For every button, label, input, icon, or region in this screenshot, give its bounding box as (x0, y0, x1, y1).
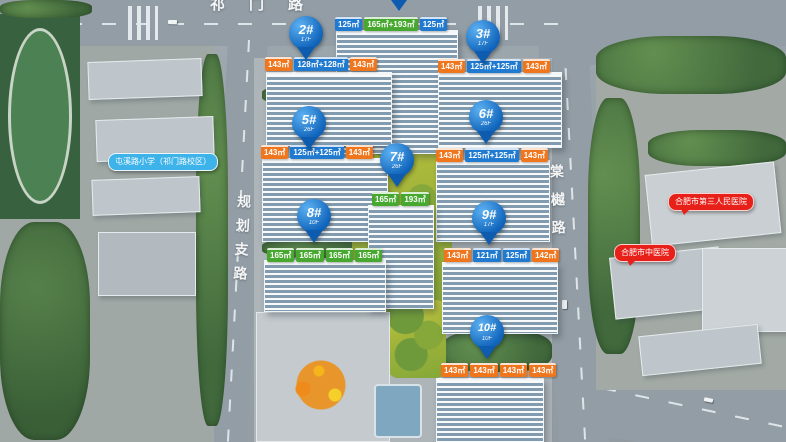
tower-2 (266, 72, 392, 146)
pin-1-partial (391, 0, 407, 11)
school-building (87, 58, 202, 100)
building-number: 7# (380, 150, 414, 163)
pool-plaza (374, 384, 422, 438)
building-floors: 17F (466, 40, 500, 48)
area-label: 143㎡ (441, 363, 468, 377)
pin-tail (297, 47, 315, 60)
building-floors: 26F (380, 163, 414, 171)
pin-tail (480, 232, 498, 245)
hospital-bottom-bubble: 合肥市中医院 (614, 244, 676, 262)
road-name-top: 祁门路 (210, 0, 327, 14)
area-label: 121㎡ (473, 248, 500, 262)
area-strip-6: 143㎡ 125㎡+125㎡ 143㎡ (435, 148, 549, 162)
hospital-building (702, 248, 786, 332)
area-label: 165㎡ (355, 248, 382, 262)
pin-building-6: 6# 26F (466, 100, 506, 144)
school-building (91, 176, 200, 216)
building-number: 5# (292, 113, 326, 126)
pin-building-5: 5# 26F (289, 106, 329, 150)
building-floors: 10F (470, 335, 504, 343)
pin-building-9: 9# 17F (469, 201, 509, 245)
area-label: 165㎡+193㎡ (364, 17, 417, 31)
building-number: 9# (472, 208, 506, 221)
area-label: 143㎡ (521, 148, 548, 162)
pin-head: 8# 10F (297, 199, 331, 233)
building-number: 8# (297, 206, 331, 219)
pin-head: 5# 26F (292, 106, 326, 140)
pin-building-2: 2# 17F (286, 16, 326, 60)
road-bottom-right-laneline (602, 387, 786, 435)
area-label: 125㎡ (335, 17, 362, 31)
bubble-tail (627, 260, 636, 266)
building-floors: 26F (292, 126, 326, 134)
road-name-right: 棠樾路 (547, 164, 570, 249)
crosswalk-left (128, 6, 158, 40)
area-label: 143㎡ (500, 363, 527, 377)
area-label: 143㎡ (438, 59, 465, 73)
area-label: 143㎡ (350, 57, 377, 71)
building-number: 6# (469, 107, 503, 120)
pin-head: 10# 10F (470, 315, 504, 349)
building-floors: 26F (469, 120, 503, 128)
area-label: 125㎡ (503, 248, 530, 262)
hospital-top-bubble: 合肥市第三人民医院 (668, 193, 754, 211)
area-label: 165㎡ (372, 192, 399, 206)
car (168, 20, 177, 24)
tree-cluster (596, 36, 786, 94)
tower-10 (436, 378, 544, 442)
building-number: 2# (289, 23, 323, 36)
aerial-masterplan-map: 125㎡ 165㎡+193㎡ 125㎡ 143㎡ 128㎡+128㎡ 143㎡ … (0, 0, 786, 442)
building-floors: 10F (297, 219, 331, 227)
area-label: 143㎡ (523, 59, 550, 73)
pin-tail (305, 230, 323, 243)
car (562, 300, 567, 309)
tree-cluster (0, 0, 92, 18)
area-label: 165㎡ (267, 248, 294, 262)
pin-building-3: 3# 17F (463, 20, 503, 64)
area-label: 143㎡ (470, 363, 497, 377)
pin-building-7: 7# 26F (377, 143, 417, 187)
pin-head: 2# 17F (289, 16, 323, 50)
pin-tail (478, 346, 496, 359)
tree-cluster (196, 54, 228, 426)
south-park (388, 300, 446, 378)
area-label: 143㎡ (346, 145, 373, 159)
building-floors: 17F (289, 36, 323, 44)
area-label: 142㎡ (532, 248, 559, 262)
building-number: 10# (470, 322, 504, 335)
pin-head: 3# 17F (466, 20, 500, 54)
area-label: 143㎡ (529, 363, 556, 377)
kindergarten-building (256, 312, 390, 442)
tree-cluster (648, 130, 786, 166)
pin-building-10: 10# 10F (467, 315, 507, 359)
tower-8 (264, 260, 386, 312)
building-floors: 17F (472, 221, 506, 229)
pin-tail (474, 51, 492, 64)
pin-tail (477, 131, 495, 144)
area-label: 125㎡ (420, 17, 447, 31)
area-label: 193㎡ (401, 192, 428, 206)
pin-head: 7# 26F (380, 143, 414, 177)
school-label-bubble: 屯溪路小学（祁门路校区） (108, 153, 218, 171)
area-label: 143㎡ (444, 248, 471, 262)
area-strip-1: 125㎡ 165㎡+193㎡ 125㎡ (334, 17, 448, 31)
hospital-top-label: 合肥市第三人民医院 (675, 197, 747, 206)
area-label: 143㎡ (261, 145, 288, 159)
area-strip-8: 165㎡ 165㎡ 165㎡ 165㎡ (266, 248, 383, 262)
area-label: 125㎡+125㎡ (465, 148, 518, 162)
school-building (98, 232, 196, 296)
hospital-bottom-label: 合肥市中医院 (621, 248, 669, 257)
bubble-tail (681, 209, 690, 215)
building-number: 3# (466, 27, 500, 40)
pin-building-8: 8# 10F (294, 199, 334, 243)
area-strip-9: 143㎡ 121㎡ 125㎡ 142㎡ (443, 248, 560, 262)
area-strip-7: 165㎡ 193㎡ (371, 192, 430, 206)
tree-cluster (0, 222, 90, 440)
pin-head: 9# 17F (472, 201, 506, 235)
pin-head: 6# 26F (469, 100, 503, 134)
pin-tail (300, 137, 318, 150)
sports-field (0, 14, 80, 219)
area-label: 165㎡ (326, 248, 353, 262)
pin-tail (388, 174, 406, 187)
running-track (8, 28, 72, 204)
area-strip-10: 143㎡ 143㎡ 143㎡ 143㎡ (440, 363, 557, 377)
area-label: 143㎡ (436, 148, 463, 162)
area-label: 165㎡ (296, 248, 323, 262)
